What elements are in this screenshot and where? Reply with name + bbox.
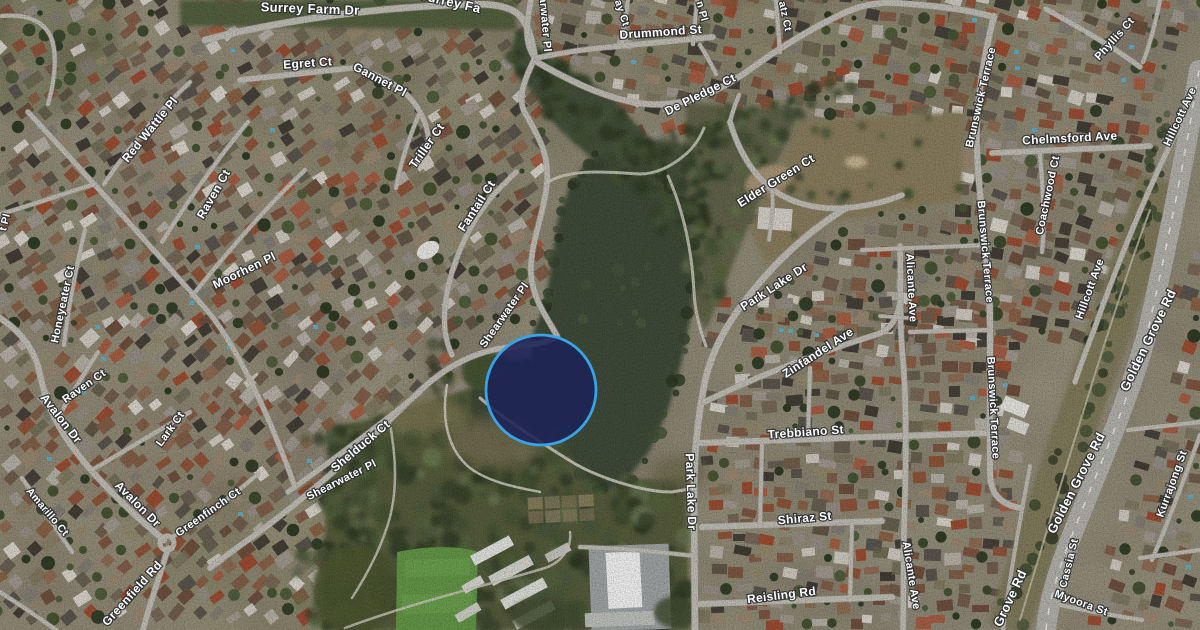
svg-text:Park Lake Dr: Park Lake Dr bbox=[683, 453, 700, 530]
